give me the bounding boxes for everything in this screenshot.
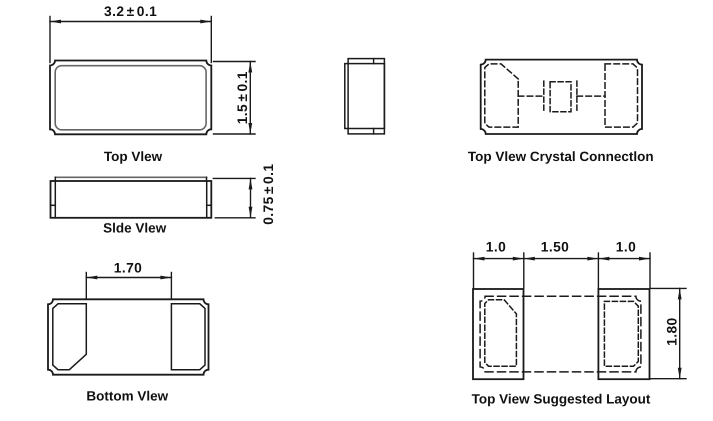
svg-text:1.5±0.1: 1.5±0.1 (235, 71, 250, 124)
svg-text:1.80: 1.80 (665, 317, 680, 345)
svg-text:Top Vlew Crystal Connectlon: Top Vlew Crystal Connectlon (468, 149, 654, 164)
svg-text:Bottom Vlew: Bottom Vlew (86, 389, 168, 404)
svg-text:Top View Suggested Layout: Top View Suggested Layout (472, 391, 651, 406)
svg-text:3.2±0.1: 3.2±0.1 (104, 4, 157, 19)
svg-text:Slde Vlew: Slde Vlew (103, 220, 167, 235)
svg-text:1.0: 1.0 (616, 240, 636, 255)
svg-text:1.0: 1.0 (486, 240, 506, 255)
svg-text:1.50: 1.50 (541, 240, 569, 255)
svg-text:1.70: 1.70 (114, 260, 142, 275)
svg-text:0.75±0.1: 0.75±0.1 (261, 164, 276, 225)
svg-text:Top Vlew: Top Vlew (104, 149, 163, 164)
